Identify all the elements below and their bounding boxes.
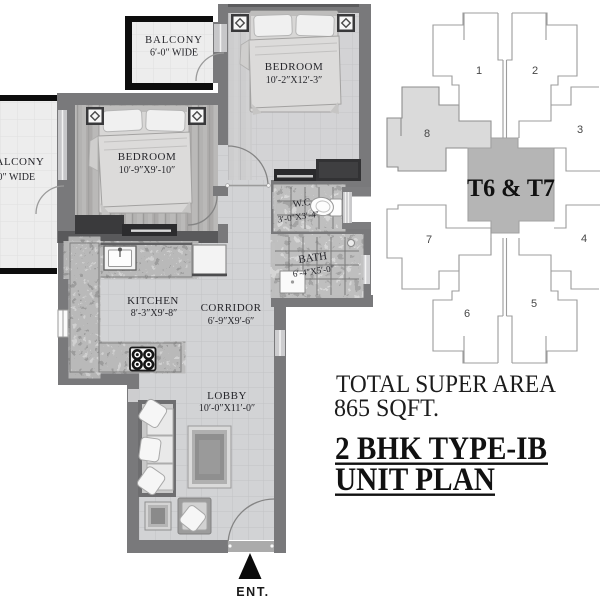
svg-text:UNIT PLAN: UNIT PLAN [335, 462, 495, 498]
svg-text:5: 5 [531, 298, 537, 310]
svg-text:10′-9″X9′-10″: 10′-9″X9′-10″ [119, 165, 176, 176]
svg-text:KITCHEN: KITCHEN [127, 295, 179, 307]
svg-text:4: 4 [581, 233, 587, 245]
svg-text:6′-0″ WIDE: 6′-0″ WIDE [150, 48, 198, 59]
svg-text:ENT.: ENT. [236, 585, 270, 599]
svg-text:BALCONY: BALCONY [145, 35, 203, 46]
svg-text:8: 8 [424, 128, 430, 140]
svg-text:6′-9″X9′-6″: 6′-9″X9′-6″ [208, 316, 255, 327]
svg-text:8′-3″X9′-8″: 8′-3″X9′-8″ [131, 308, 178, 319]
svg-text:10′-2″X12′-3″: 10′-2″X12′-3″ [266, 75, 323, 86]
svg-text:1: 1 [476, 65, 482, 77]
svg-text:BEDROOM: BEDROOM [118, 151, 177, 163]
svg-text:TOTAL SUPER AREA: TOTAL SUPER AREA [336, 371, 556, 398]
svg-text:6′-0″ WIDE: 6′-0″ WIDE [0, 172, 35, 183]
svg-text:3: 3 [577, 124, 583, 136]
svg-text:BALCONY: BALCONY [0, 156, 44, 168]
svg-text:7: 7 [426, 234, 432, 246]
svg-text:10′-0″X11′-0″: 10′-0″X11′-0″ [199, 403, 255, 414]
svg-text:865 SQFT.: 865 SQFT. [334, 395, 439, 422]
svg-text:6: 6 [464, 308, 470, 320]
svg-text:LOBBY: LOBBY [207, 390, 247, 402]
svg-text:CORRIDOR: CORRIDOR [201, 302, 262, 314]
svg-text:2: 2 [532, 65, 538, 77]
svg-text:T6 & T7: T6 & T7 [467, 175, 555, 202]
svg-text:BEDROOM: BEDROOM [265, 61, 324, 73]
